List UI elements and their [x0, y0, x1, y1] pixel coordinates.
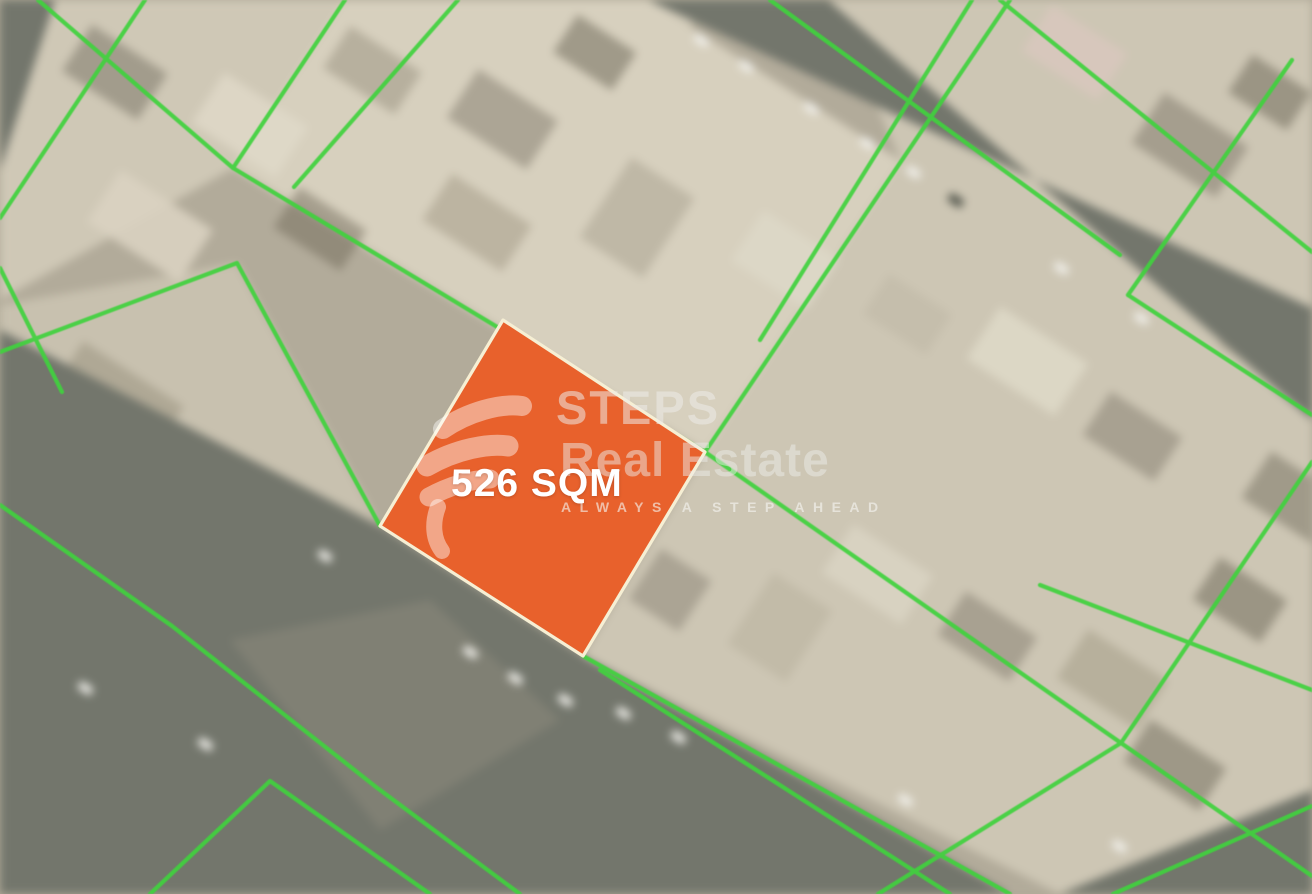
steps-swoosh-logo-icon [0, 0, 1312, 894]
satellite-plot-listing-image: STEPS Real Estate ALWAYS A STEP AHEAD 52… [0, 0, 1312, 894]
